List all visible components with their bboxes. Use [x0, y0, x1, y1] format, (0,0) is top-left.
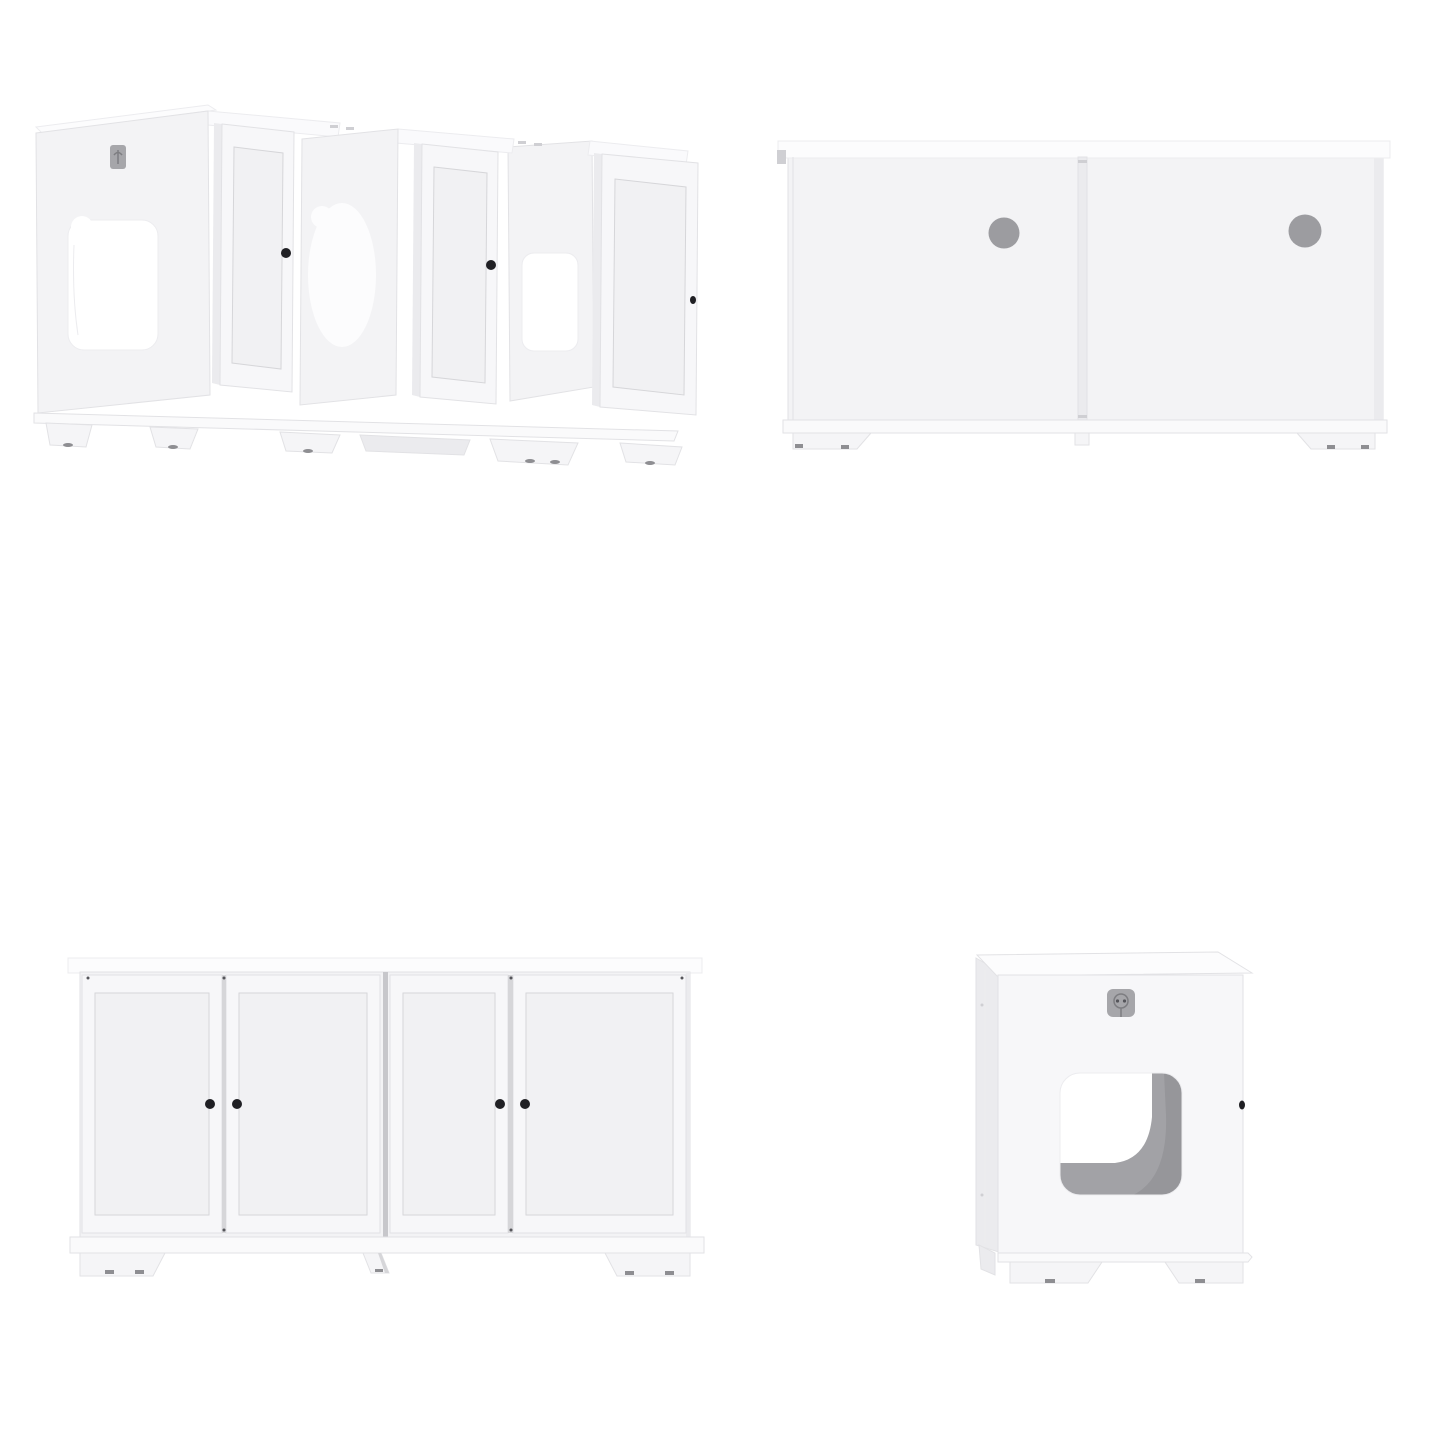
hinge-dot	[223, 977, 226, 980]
top-slab	[778, 141, 1390, 158]
top-slab	[68, 958, 702, 973]
door-seam	[508, 975, 513, 1233]
cable-hole-left	[989, 218, 1020, 249]
hinge-mark	[518, 141, 526, 144]
door-1	[82, 975, 222, 1233]
door-knob	[486, 260, 496, 270]
unit-seam	[383, 972, 388, 1237]
rear-side-panel	[508, 141, 594, 401]
hinge-dot	[510, 1229, 513, 1232]
perspective-render	[30, 95, 710, 470]
rear-cutout-opening	[522, 253, 578, 351]
top-slab	[977, 952, 1252, 976]
bottom-slab	[783, 420, 1387, 433]
edge-knob	[1239, 1101, 1245, 1110]
base-strip	[998, 1253, 1252, 1262]
product-image-grid	[0, 0, 1445, 1445]
logo-badge	[110, 145, 126, 169]
pass-through-notch	[311, 206, 333, 228]
door-knob	[281, 248, 291, 258]
view-side	[965, 945, 1285, 1290]
view-perspective-open	[30, 95, 710, 470]
right-edge-sliver	[1374, 157, 1383, 420]
cable-hole-right	[1289, 215, 1322, 248]
door-seam	[222, 975, 226, 1233]
door-4	[513, 975, 686, 1233]
middle-partition	[300, 129, 398, 405]
logo-badge	[1107, 989, 1135, 1017]
side-render	[965, 945, 1285, 1290]
open-door-right	[592, 153, 698, 415]
view-back	[775, 138, 1395, 453]
left-side-panel	[36, 105, 216, 413]
door-knob	[232, 1099, 242, 1109]
corner-bracket	[777, 150, 786, 164]
entry-hole	[1060, 1073, 1182, 1195]
hinge-dot	[223, 1229, 226, 1232]
base-platform	[34, 413, 678, 441]
front-render	[65, 952, 705, 1282]
view-front	[65, 952, 705, 1282]
door-3	[390, 975, 508, 1233]
hinge-mark	[534, 143, 542, 146]
door-knob	[520, 1099, 530, 1109]
hinge-mark	[346, 127, 354, 130]
open-door-left	[212, 123, 294, 392]
door-knob	[690, 296, 696, 304]
hinge-mark	[330, 125, 338, 128]
feet	[793, 433, 1375, 449]
hinge-dot	[87, 977, 90, 980]
hinge-dot	[510, 977, 513, 980]
back-render	[775, 138, 1395, 453]
door-knob	[205, 1099, 215, 1109]
hinge-dot	[681, 977, 684, 980]
feet	[80, 1253, 690, 1276]
side-cutout-opening	[68, 216, 158, 350]
right-edge-sliver	[686, 972, 690, 1237]
center-divider	[1078, 157, 1087, 420]
open-door-middle	[412, 143, 498, 404]
door-knob	[495, 1099, 505, 1109]
hinge-mark	[1078, 415, 1087, 418]
base-strip	[70, 1237, 704, 1253]
door-2	[226, 975, 380, 1233]
feet	[1010, 1262, 1243, 1283]
hinge-mark	[1078, 160, 1087, 163]
